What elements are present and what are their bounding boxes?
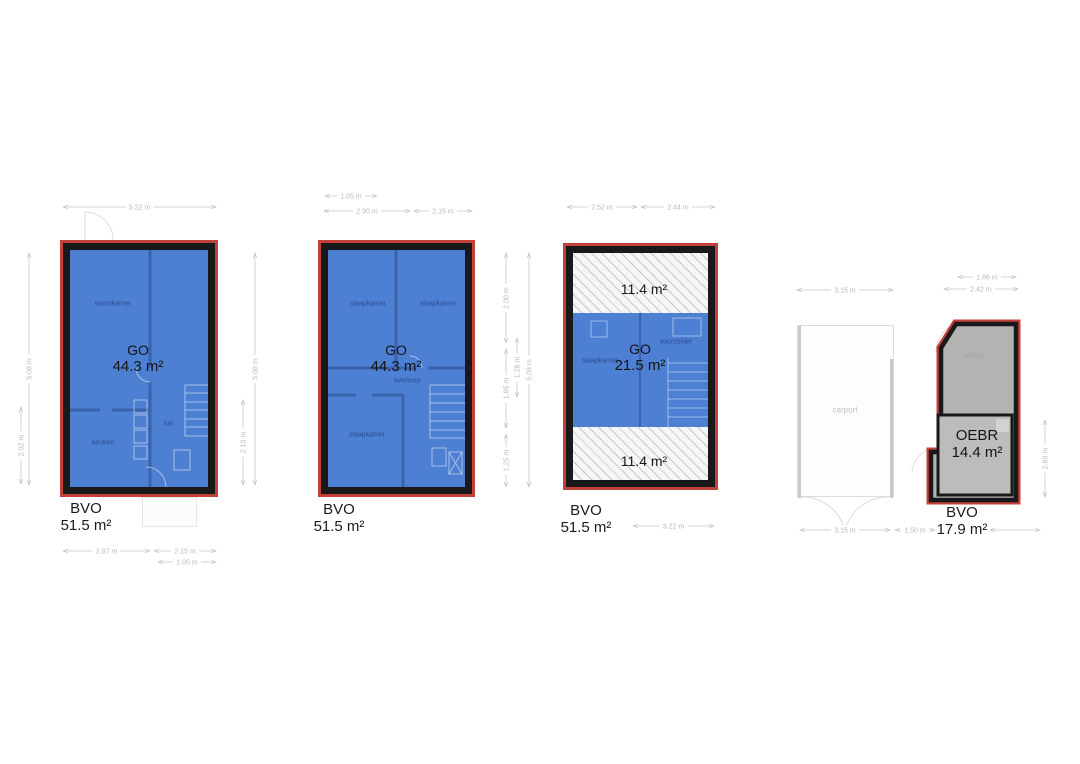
go-area-ground-floor: GO 44.3 m² (113, 342, 164, 375)
dimension-label: 1.05 m (173, 558, 201, 567)
dimension-label: 2.44 m (664, 203, 692, 212)
svg-text:1.05 m: 1.05 m (340, 194, 362, 201)
go-area-second-floor: GO 21.5 m² (615, 341, 666, 374)
svg-text:1.25 m: 1.25 m (504, 450, 511, 472)
dimension-label: 2.52 m (588, 203, 616, 212)
carport-right-post (890, 359, 893, 498)
dimension-label: 1.28 m (513, 354, 522, 382)
bvo-title: BVO (314, 502, 365, 518)
bvo-value: 51.5 m² (61, 517, 112, 534)
dimension-label: 1.25 m (502, 447, 511, 475)
room-label-slaapkamer-attic: slaapkamer (582, 358, 618, 365)
dimension-label: 2.10 m (239, 429, 248, 457)
svg-text:5.08 m: 5.08 m (253, 358, 260, 380)
dimension-label: 2.02 m (17, 432, 26, 460)
go-title: GO (113, 342, 164, 358)
room-label-woonkamer: woonkamer (95, 301, 131, 308)
svg-text:2.52 m: 2.52 m (591, 205, 613, 212)
dimension-label: 3.15 m (831, 286, 859, 295)
svg-text:1.28 m: 1.28 m (515, 357, 522, 379)
oebr-title: OEBR (952, 427, 1003, 444)
room-label-slaapkamer-bottom: slaapkamer (349, 432, 385, 439)
svg-text:2.60 m: 2.60 m (1043, 448, 1050, 470)
svg-text:2.90 m: 2.90 m (356, 209, 378, 216)
dimension-label: 1.05 m (337, 192, 365, 201)
svg-text:2.15 m: 2.15 m (432, 209, 454, 216)
svg-text:3.22 m: 3.22 m (663, 524, 685, 531)
go-area-first-floor: GO 44.3 m² (371, 342, 422, 375)
svg-text:5.08 m: 5.08 m (27, 358, 34, 380)
dimension-label: 1.86 m (973, 273, 1001, 282)
bvo-title: BVO (561, 503, 612, 519)
hatch-area-value-top: 11.4 m² (621, 281, 667, 297)
dimension-label: 1.50 m (901, 526, 929, 535)
bvo-value: 51.5 m² (561, 519, 612, 536)
dimension-label: 5.08 m (525, 356, 534, 384)
dimension-label: 2.15 m (429, 207, 457, 216)
room-label-overloop: overloop (394, 378, 421, 385)
svg-text:2.02 m: 2.02 m (19, 435, 26, 457)
dimension-label: 2.87 m (93, 547, 121, 556)
svg-text:2.44 m: 2.44 m (667, 205, 689, 212)
bvo-area-ground-floor: BVO 51.5 m² (61, 501, 112, 534)
svg-text:1.86 m: 1.86 m (976, 275, 998, 282)
floorplan-sheet: 5.22 m1.05 m2.90 m2.15 m2.52 m2.44 m3.15… (0, 0, 1080, 764)
bvo-area-exterior: BVO 17.9 m² (937, 505, 988, 538)
room-label-slaapkamer-right: slaapkamer (420, 301, 456, 308)
bvo-area-first-floor: BVO 51.5 m² (314, 502, 365, 535)
go-title: GO (371, 342, 422, 358)
dimension-label: 1.85 m (502, 375, 511, 403)
svg-text:5.22 m: 5.22 m (129, 205, 151, 212)
svg-text:1.50 m: 1.50 m (904, 528, 926, 535)
oebr-area: OEBR 14.4 m² (952, 427, 1003, 461)
dimension-label: 5.08 m (25, 355, 34, 383)
room-label-hal: hal (163, 421, 172, 428)
bvo-area-second-floor: BVO 51.5 m² (561, 503, 612, 536)
svg-text:2.00 m: 2.00 m (504, 287, 511, 309)
bvo-title: BVO (937, 505, 988, 521)
room-label-keuken: keuken (92, 440, 115, 447)
room-label-carport: carport (833, 406, 858, 415)
svg-text:1.05 m: 1.05 m (176, 560, 198, 567)
go-value: 44.3 m² (113, 358, 164, 375)
dimension-label: 2.00 m (502, 284, 511, 312)
dimension-label: 2.90 m (353, 207, 381, 216)
go-value: 21.5 m² (615, 357, 666, 374)
bvo-value: 17.9 m² (937, 521, 988, 538)
svg-text:2.10 m: 2.10 m (241, 432, 248, 454)
go-value: 44.3 m² (371, 358, 422, 375)
go-title: GO (615, 341, 666, 357)
stairs-and-fixtures (134, 368, 208, 487)
dimension-label: 3.15 m (831, 526, 859, 535)
svg-text:2.15 m: 2.15 m (174, 549, 196, 556)
room-label-slaapkamer-left: slaapkamer (350, 301, 386, 308)
schuur-shape (925, 313, 1025, 508)
bvo-title: BVO (61, 501, 112, 517)
entrance-extension-outline (142, 497, 197, 527)
dimension-label: 3.22 m (660, 522, 688, 531)
svg-text:2.87 m: 2.87 m (96, 549, 118, 556)
dimension-label: 2.42 m (967, 285, 995, 294)
dimension-label: 5.22 m (126, 203, 154, 212)
svg-text:3.15 m: 3.15 m (834, 288, 856, 295)
oebr-value: 14.4 m² (952, 444, 1003, 461)
carport-left-post (798, 326, 801, 498)
svg-text:1.85 m: 1.85 m (504, 378, 511, 400)
room-label-schuur: schuur (964, 353, 985, 360)
dimension-label: 2.60 m (1041, 445, 1050, 473)
svg-text:2.42 m: 2.42 m (970, 287, 992, 294)
hatch-area-value-bottom: 11.4 m² (621, 453, 667, 469)
dimension-label: 2.15 m (171, 547, 199, 556)
bvo-value: 51.5 m² (314, 518, 365, 535)
svg-text:3.15 m: 3.15 m (834, 528, 856, 535)
dimension-label: 5.08 m (251, 355, 260, 383)
svg-text:5.08 m: 5.08 m (527, 359, 534, 381)
